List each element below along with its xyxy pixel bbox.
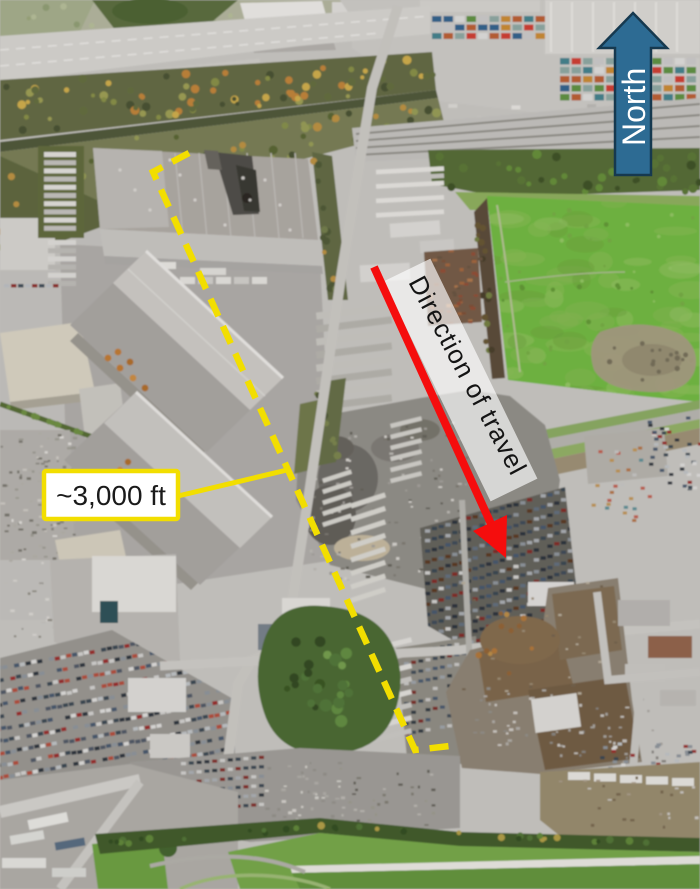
svg-text:North: North <box>616 68 652 146</box>
svg-text:~3,000 ft: ~3,000 ft <box>56 480 166 511</box>
